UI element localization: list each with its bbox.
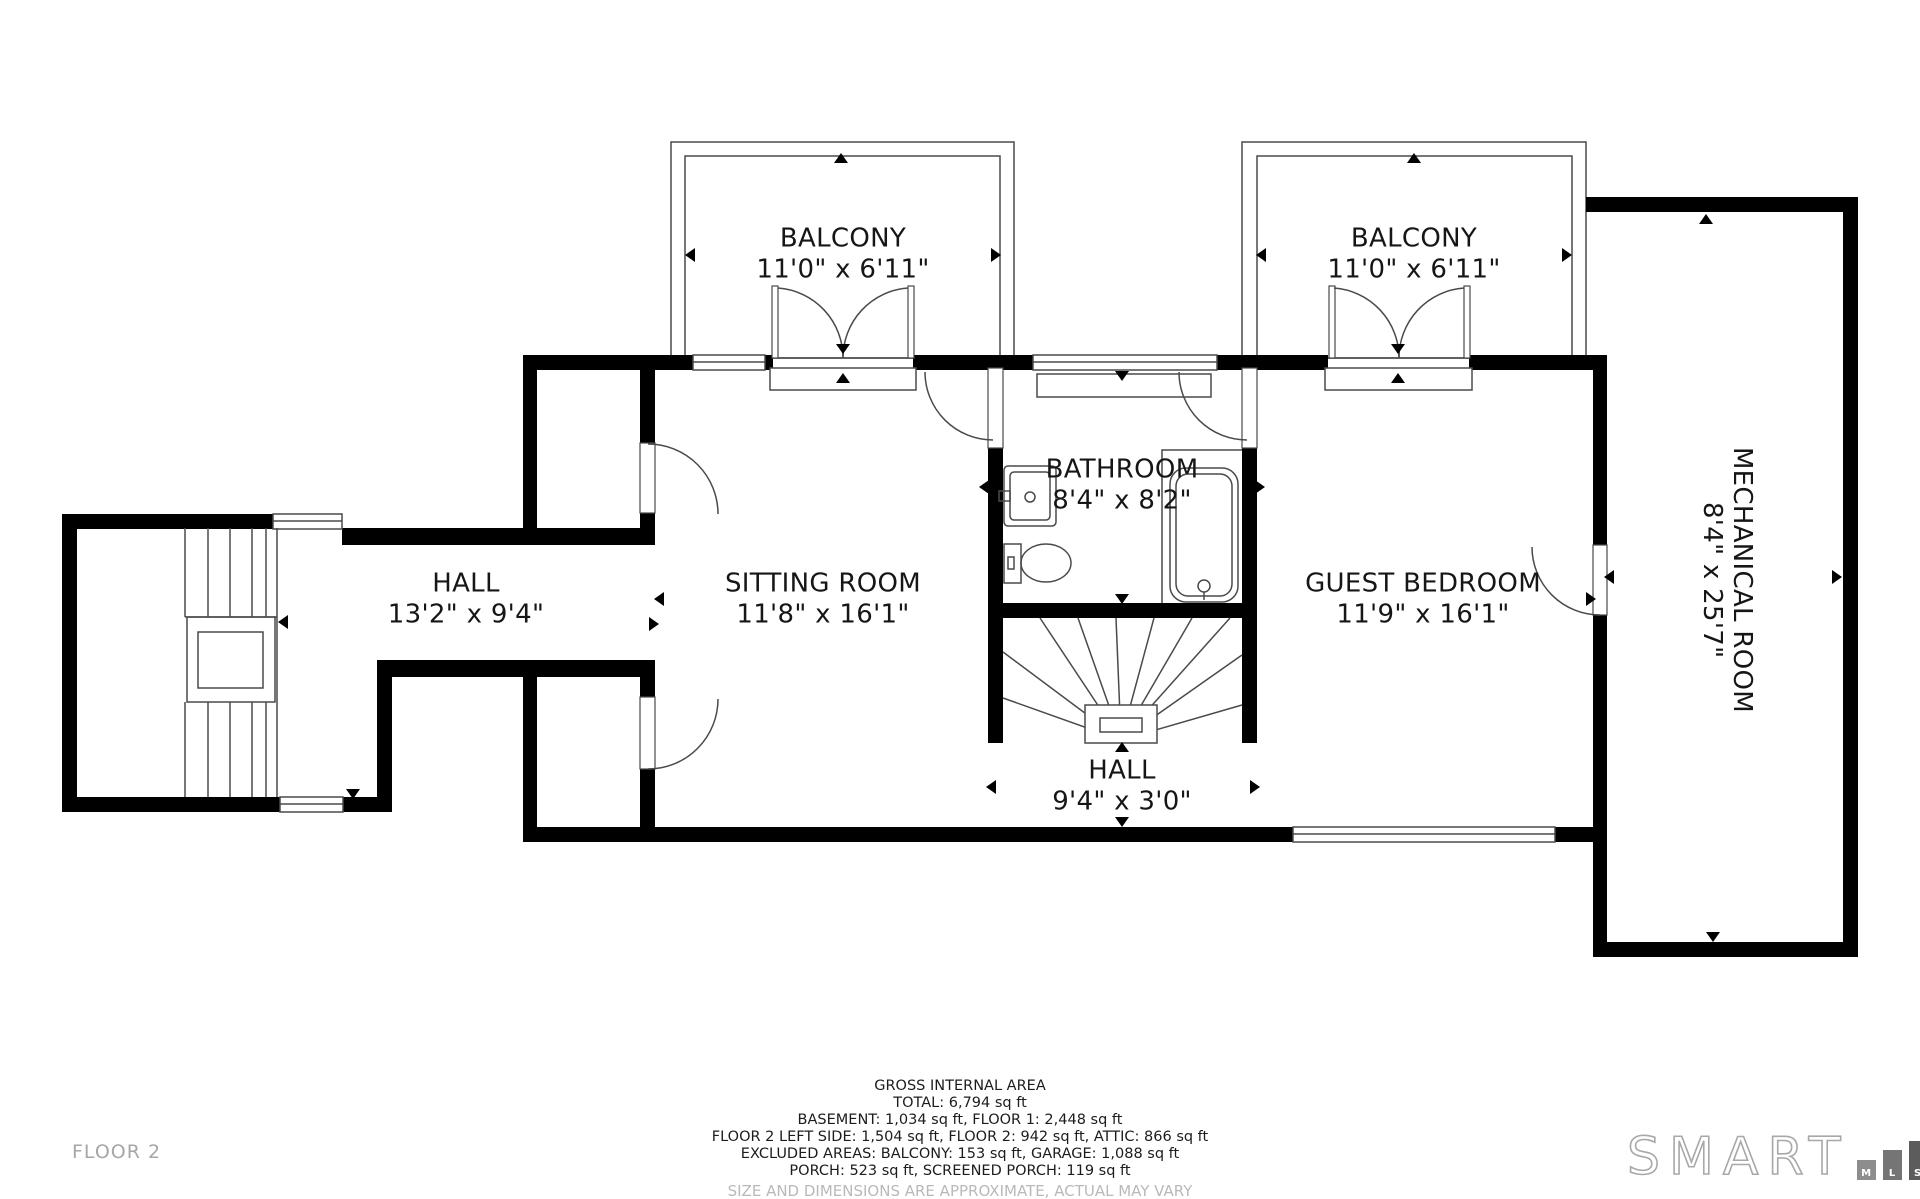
summary-line: BASEMENT: 1,034 sq ft, FLOOR 1: 2,448 sq…	[712, 1112, 1208, 1129]
room-label-guest-bedroom: GUEST BEDROOM 11'9" x 16'1"	[1305, 568, 1541, 629]
room-dims: 11'9" x 16'1"	[1305, 599, 1541, 630]
room-label-balcony-right: BALCONY 11'0" x 6'11"	[1327, 223, 1500, 284]
mls-box-m: M	[1857, 1160, 1876, 1180]
door-guest-bedroom-east	[1532, 545, 1607, 615]
room-dims: 11'8" x 16'1"	[725, 599, 921, 630]
room-label-sitting-room: SITTING ROOM 11'8" x 16'1"	[725, 568, 921, 629]
room-name: BALCONY	[1327, 223, 1500, 254]
room-label-hall-center: HALL 9'4" x 3'0"	[1052, 755, 1192, 816]
mls-box-s: S	[1909, 1141, 1920, 1180]
summary-line: FLOOR 2 LEFT SIDE: 1,504 sq ft, FLOOR 2:…	[712, 1129, 1208, 1146]
room-label-mechanical-room: MECHANICAL ROOM 8'4" x 25'7"	[1696, 447, 1756, 713]
toilet	[1004, 544, 1071, 583]
room-name: GUEST BEDROOM	[1305, 568, 1541, 599]
room-label-bathroom: BATHROOM 8'4" x 8'2"	[1046, 454, 1199, 515]
floorplan-page: BALCONY 11'0" x 6'11" BALCONY 11'0" x 6'…	[0, 0, 1920, 1199]
room-name: BATHROOM	[1046, 454, 1199, 485]
room-dims: 11'0" x 6'11"	[756, 254, 929, 285]
area-summary: GROSS INTERNAL AREA TOTAL: 6,794 sq ft B…	[712, 1078, 1208, 1199]
room-dims: 11'0" x 6'11"	[1327, 254, 1500, 285]
smartmls-logo: SMART M L S	[1627, 1134, 1920, 1180]
mls-box-l: L	[1883, 1150, 1902, 1180]
room-name: BALCONY	[756, 223, 929, 254]
summary-line: PORCH: 523 sq ft, SCREENED PORCH: 119 sq…	[712, 1163, 1208, 1180]
summary-title: GROSS INTERNAL AREA	[712, 1078, 1208, 1095]
room-dims: 8'4" x 25'7"	[1696, 447, 1726, 713]
door-closet-bottom	[640, 697, 718, 769]
room-name: HALL	[1052, 755, 1192, 786]
door-closet-top	[640, 443, 718, 514]
summary-line: EXCLUDED AREAS: BALCONY: 153 sq ft, GARA…	[712, 1146, 1208, 1163]
floorplan-drawing	[0, 0, 1920, 1199]
room-name: MECHANICAL ROOM	[1726, 447, 1756, 713]
room-name: HALL	[388, 568, 544, 599]
walls	[62, 197, 1858, 957]
stairs-winder	[1003, 618, 1242, 743]
floor-label: FLOOR 2	[72, 1141, 161, 1163]
disclaimer-text: SIZE AND DIMENSIONS ARE APPROXIMATE, ACT…	[712, 1183, 1208, 1199]
smart-wordmark: SMART	[1627, 1134, 1850, 1180]
room-name: SITTING ROOM	[725, 568, 921, 599]
room-label-hall-left: HALL 13'2" x 9'4"	[388, 568, 544, 629]
room-dims: 9'4" x 3'0"	[1052, 786, 1192, 817]
door-sittingroom-bathroom	[925, 368, 1003, 448]
room-dims: 13'2" x 9'4"	[388, 599, 544, 630]
stairs-switchback	[185, 528, 277, 797]
room-label-balcony-left: BALCONY 11'0" x 6'11"	[756, 223, 929, 284]
summary-total: TOTAL: 6,794 sq ft	[712, 1095, 1208, 1112]
room-dims: 8'4" x 8'2"	[1046, 485, 1199, 516]
